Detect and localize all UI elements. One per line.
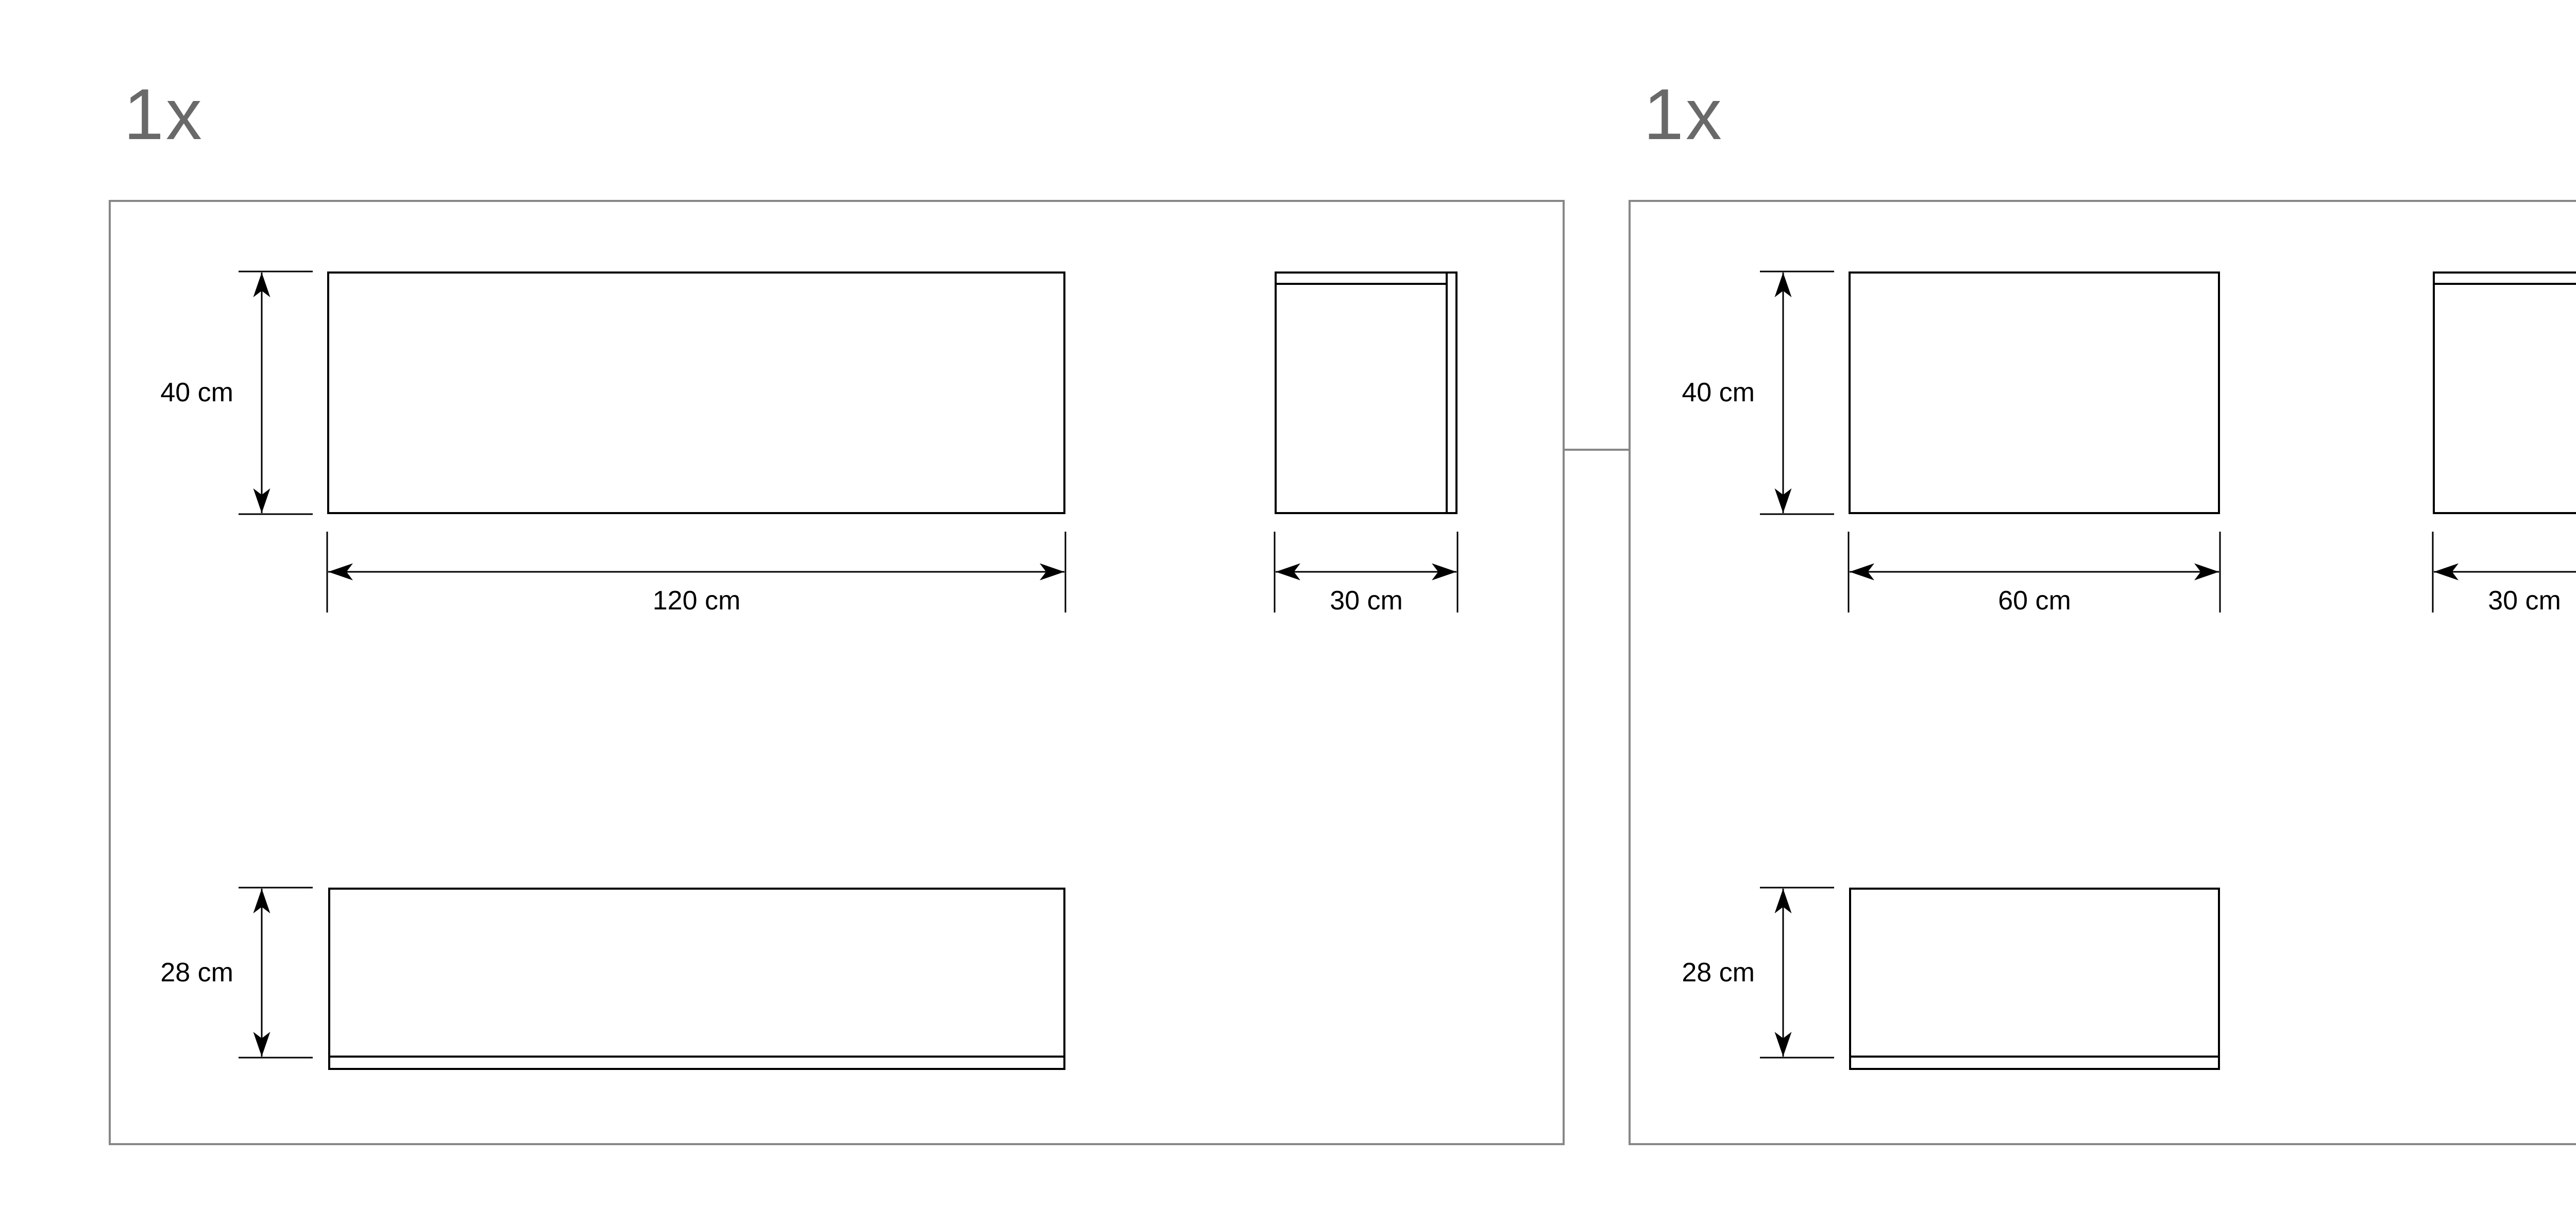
dimension-diagram: 1x 40 cm 120 cm 30 cm	[0, 0, 2576, 1224]
quantity-label-right: 1x	[1643, 78, 1724, 150]
dimension-label-front-height-left: 40 cm	[79, 378, 233, 407]
dimension-label-front-width-left: 120 cm	[594, 586, 800, 615]
dimension-label-front-width-right: 60 cm	[1931, 586, 2138, 615]
dimension-label-plinth-height-right: 28 cm	[1600, 958, 1755, 987]
dimension-label-front-height-right: 40 cm	[1600, 378, 1755, 407]
plinth-bottom-board-line-right	[1851, 1056, 2218, 1058]
side-view-top-board-line-left	[1277, 283, 1446, 285]
plinth-view-rect-right	[1849, 888, 2220, 1070]
front-view-rect-right	[1849, 271, 2220, 514]
plinth-bottom-board-line-left	[330, 1056, 1063, 1058]
dimension-label-side-width-right: 30 cm	[2421, 586, 2576, 615]
front-view-rect-left	[327, 271, 1065, 514]
dimension-label-side-width-left: 30 cm	[1263, 586, 1469, 615]
height-dimension-left-front	[234, 267, 319, 519]
height-dimension-left-plinth	[234, 883, 319, 1063]
quantity-label-left: 1x	[124, 78, 204, 150]
side-view-top-board-line-right	[2435, 283, 2576, 285]
plinth-view-rect-left	[328, 888, 1065, 1070]
frame-connector-line	[1565, 449, 1629, 451]
side-view-front-board-line-left	[1446, 274, 1448, 512]
height-dimension-right-plinth	[1756, 883, 1841, 1063]
height-dimension-right-front	[1756, 267, 1841, 519]
dimension-label-plinth-height-left: 28 cm	[79, 958, 233, 987]
side-view-rect-right	[2433, 271, 2576, 514]
side-view-rect-left	[1275, 271, 1458, 514]
